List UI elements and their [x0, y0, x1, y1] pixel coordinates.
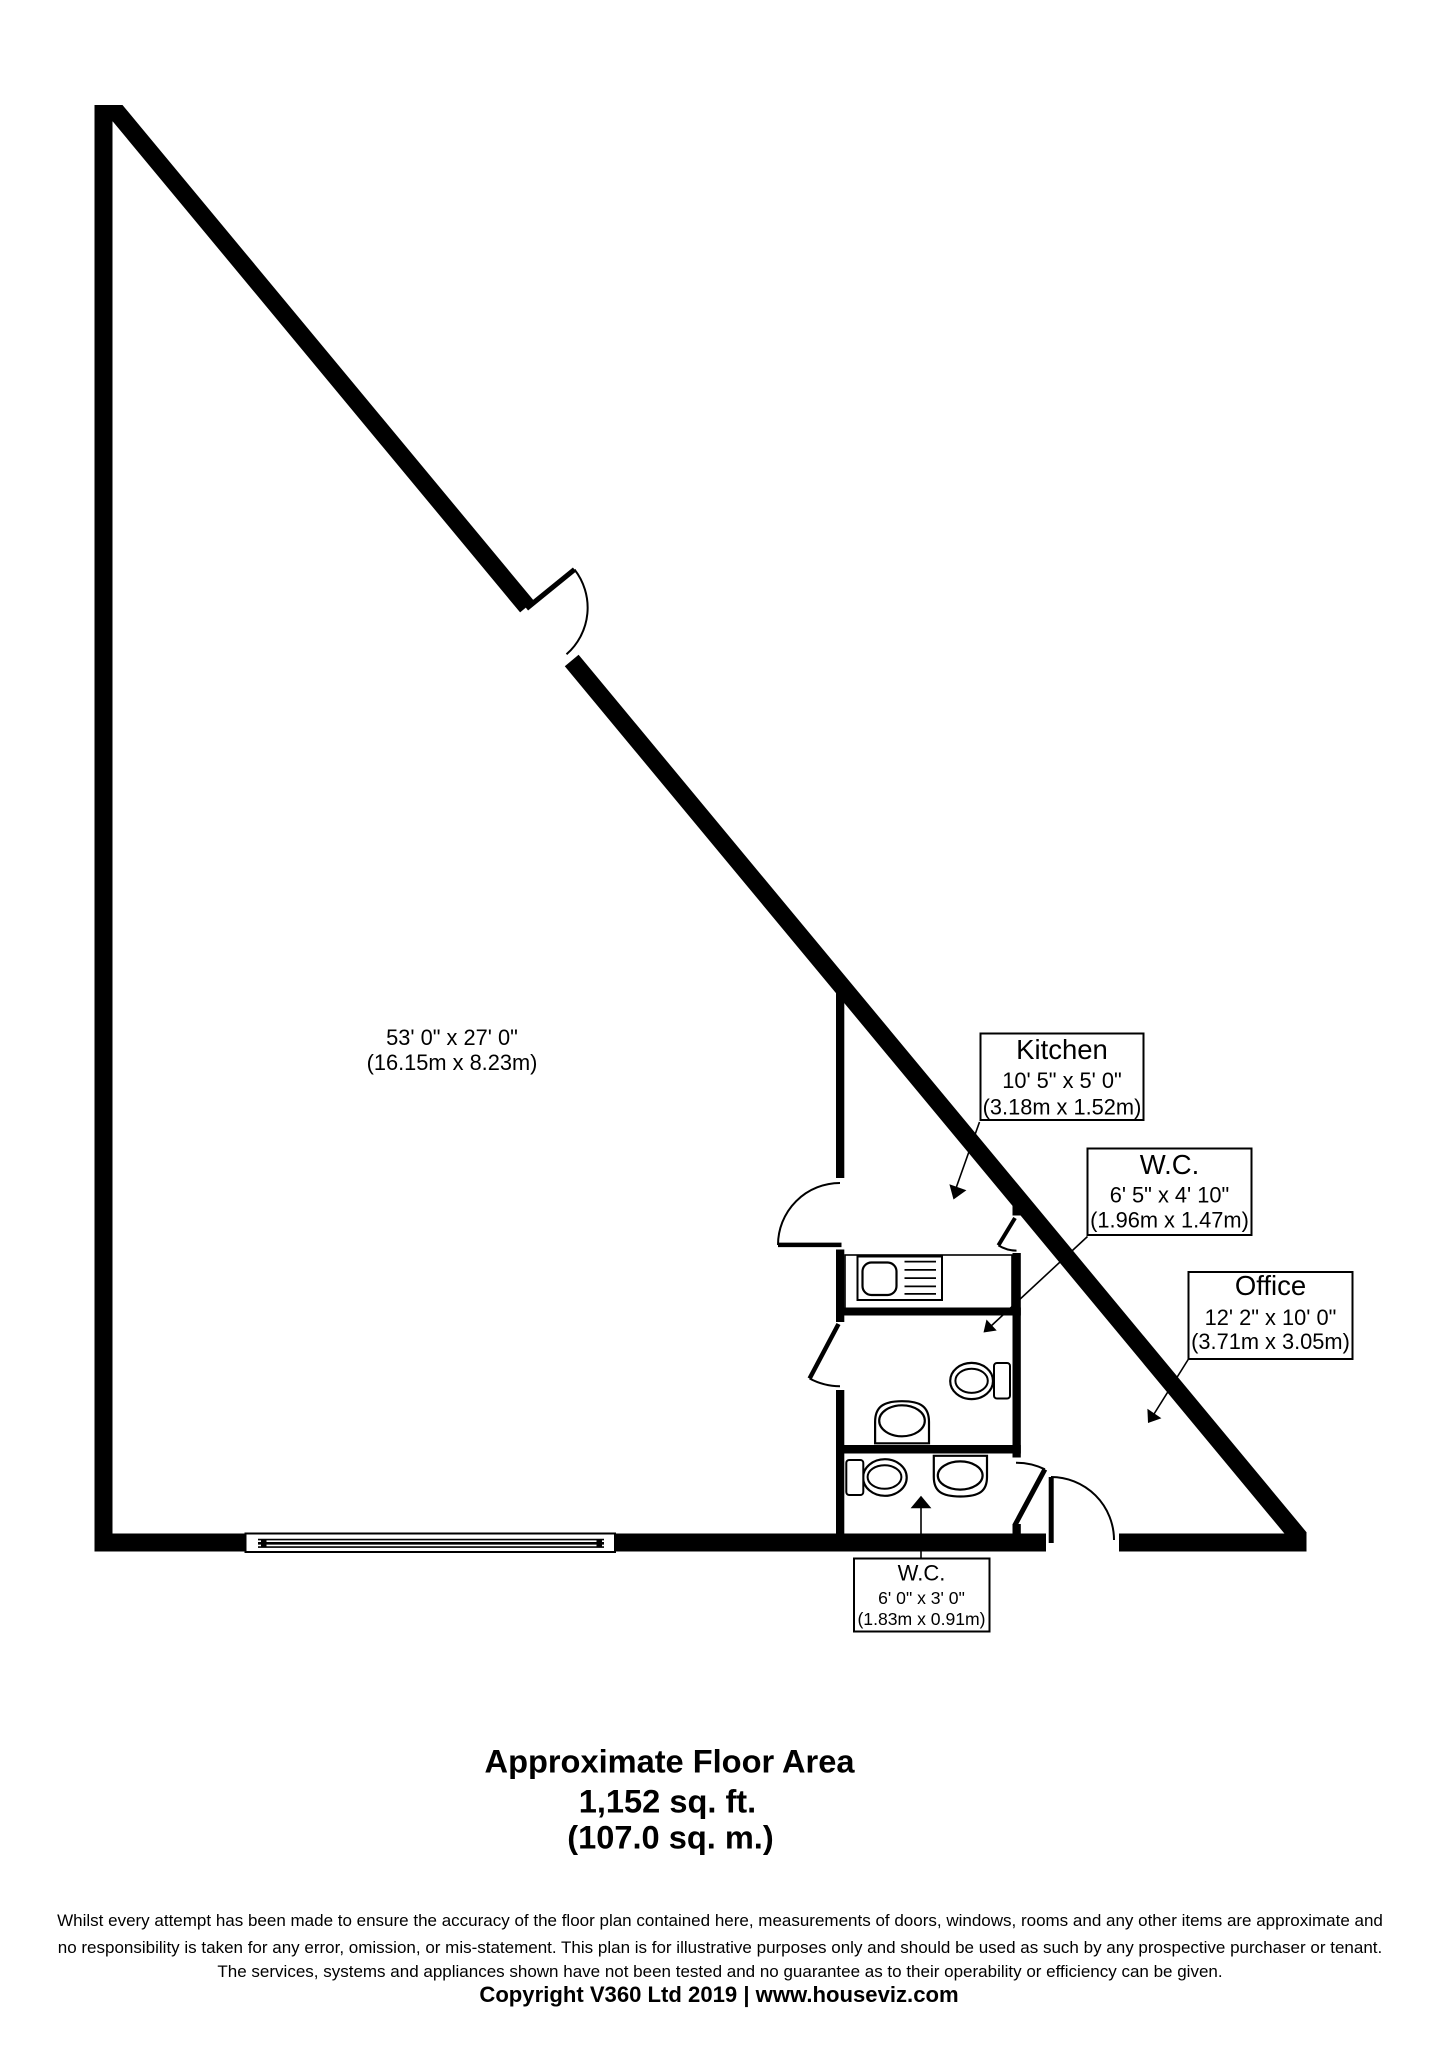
svg-text:W.C.: W.C.	[898, 1560, 946, 1585]
svg-text:53' 0" x 27' 0": 53' 0" x 27' 0"	[386, 1025, 518, 1050]
svg-text:(16.15m x 8.23m): (16.15m x 8.23m)	[367, 1050, 538, 1075]
svg-text:Kitchen: Kitchen	[1016, 1034, 1108, 1065]
svg-text:(1.83m x 0.91m): (1.83m x 0.91m)	[857, 1609, 985, 1629]
svg-text:Whilst every attempt has been: Whilst every attempt has been made to en…	[57, 1911, 1383, 1930]
svg-text:1,152 sq. ft.: 1,152 sq. ft.	[579, 1783, 756, 1820]
svg-text:(3.71m x 3.05m): (3.71m x 3.05m)	[1191, 1329, 1350, 1354]
svg-text:Office: Office	[1235, 1270, 1306, 1301]
svg-text:6' 5" x 4' 10": 6' 5" x 4' 10"	[1110, 1182, 1230, 1207]
svg-text:W.C.: W.C.	[1140, 1149, 1200, 1180]
svg-text:6' 0" x 3' 0": 6' 0" x 3' 0"	[878, 1588, 965, 1608]
svg-text:10' 5" x 5' 0": 10' 5" x 5' 0"	[1002, 1068, 1122, 1093]
svg-text:The services, systems and appl: The services, systems and appliances sho…	[217, 1962, 1222, 1981]
svg-text:Approximate Floor Area: Approximate Floor Area	[485, 1743, 856, 1780]
svg-text:(107.0 sq. m.): (107.0 sq. m.)	[567, 1818, 773, 1855]
svg-text:12' 2" x 10' 0": 12' 2" x 10' 0"	[1205, 1305, 1337, 1330]
svg-text:(3.18m x 1.52m): (3.18m x 1.52m)	[983, 1095, 1142, 1120]
svg-text:(1.96m x 1.47m): (1.96m x 1.47m)	[1090, 1207, 1249, 1232]
svg-text:Copyright V360 Ltd 2019 | www.: Copyright V360 Ltd 2019 | www.houseviz.c…	[479, 1982, 958, 2007]
svg-text:no responsibility is taken for: no responsibility is taken for any error…	[58, 1938, 1382, 1957]
